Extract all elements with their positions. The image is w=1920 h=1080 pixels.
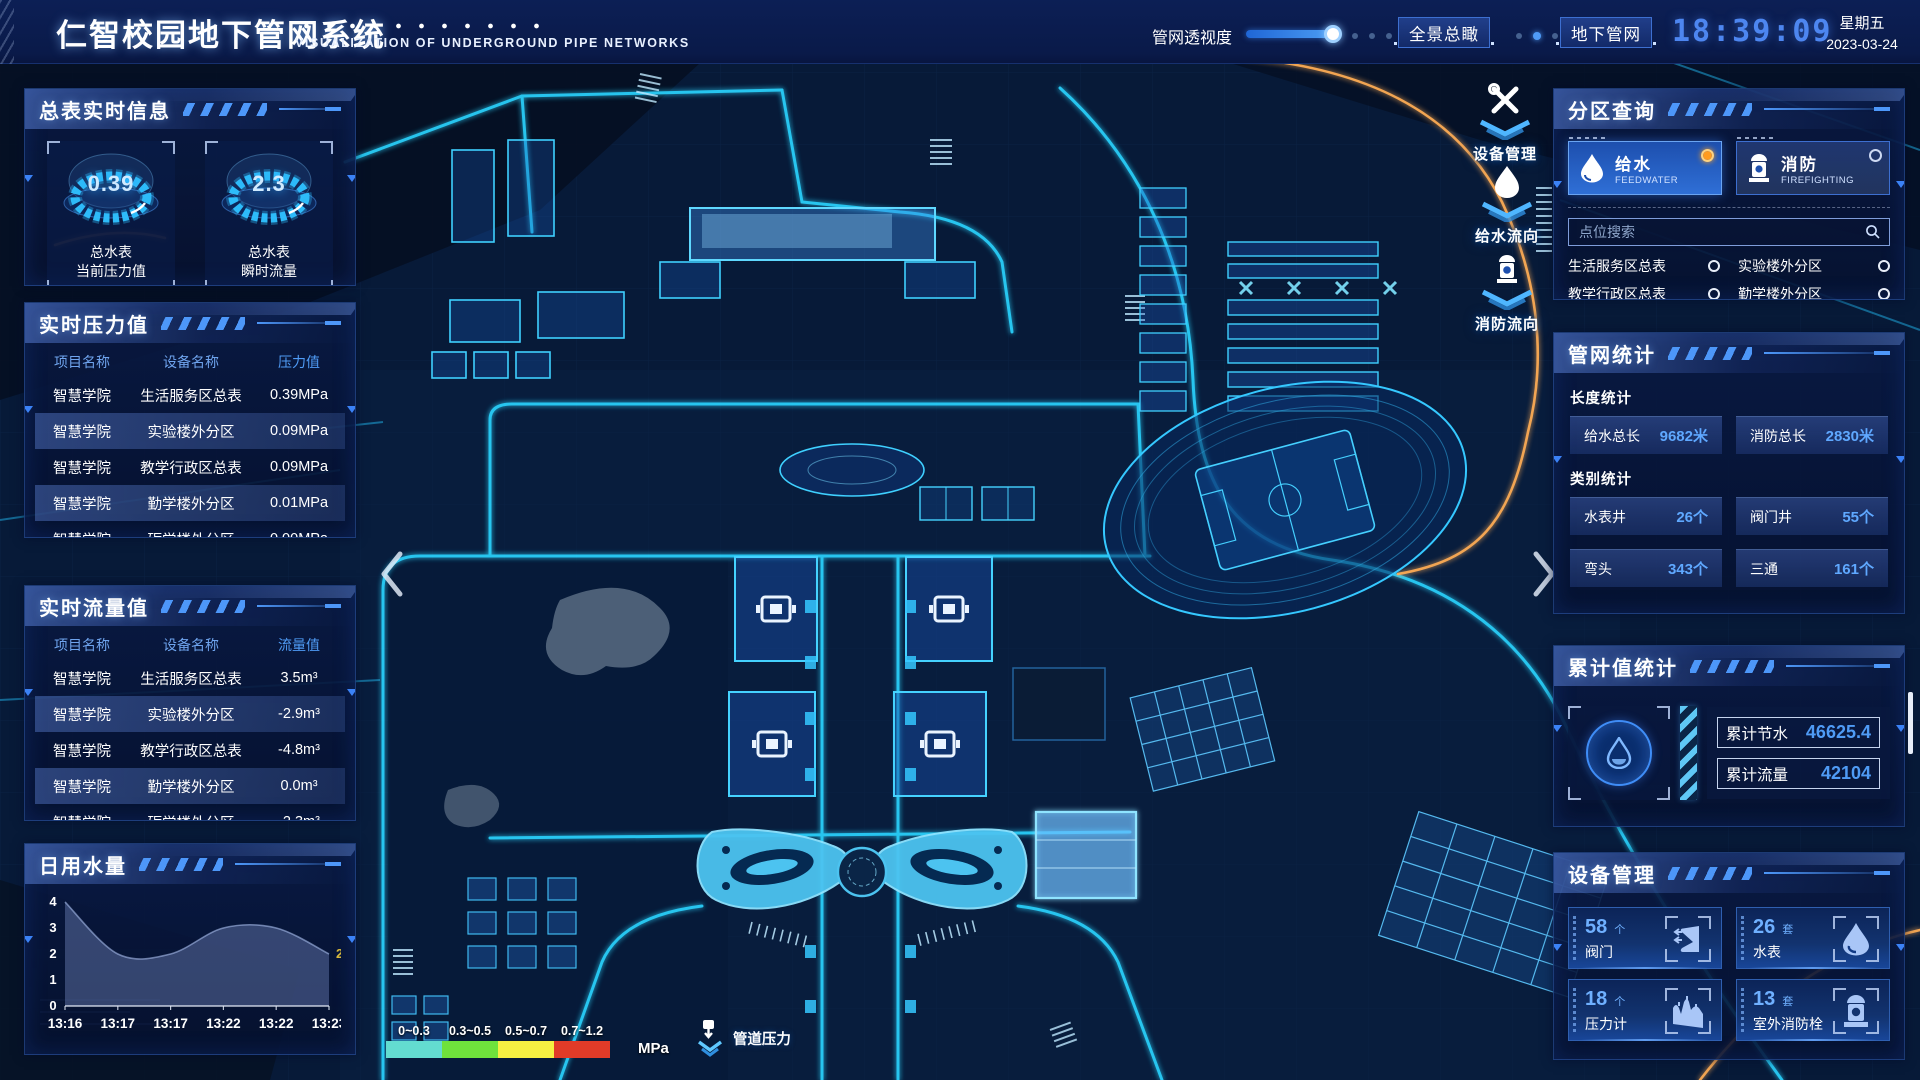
table-cell: 生活服务区总表	[129, 668, 253, 689]
table-row[interactable]: 智慧学院砺学楼外分区0.00MPa	[35, 521, 345, 538]
date: 2023-03-24	[1812, 36, 1912, 52]
table-cell: 实验楼外分区	[129, 421, 253, 442]
col-project: 项目名称	[35, 352, 129, 372]
length-stats-grid: 给水总长9682米消防总长2830米	[1554, 416, 1904, 454]
stat-label: 阀门井	[1750, 507, 1792, 527]
device-label: 阀门	[1585, 942, 1626, 962]
table-cell: -4.8m³	[253, 742, 345, 758]
slashes-decoration	[183, 103, 267, 116]
table-cell: 智慧学院	[35, 421, 129, 442]
gauge-label: 总水表当前压力值	[47, 243, 175, 281]
valve-icon-frame	[1665, 916, 1711, 962]
tab-radio[interactable]	[1869, 149, 1882, 162]
stat-value: 55个	[1842, 506, 1874, 527]
stat-value: 26个	[1676, 506, 1708, 527]
stat-label: 弯头	[1584, 559, 1612, 579]
panel-device-mgmt: 设备管理 58个阀门26套水表18个压力计13套室外消防栓	[1553, 852, 1905, 1060]
pressure-gauge-icon-frame	[1665, 988, 1711, 1034]
device-count: 26	[1753, 916, 1775, 938]
panel-meter-info: 总表实时信息 0.39总水表当前压力值2.3总水表瞬时流量	[24, 88, 356, 286]
table-cell: 勤学楼外分区	[129, 776, 253, 797]
device-card-valve[interactable]: 58个阀门	[1568, 907, 1722, 969]
legend-color-swatch	[386, 1041, 442, 1058]
legend-unit: MPa	[638, 1040, 669, 1057]
table-row[interactable]: 智慧学院勤学楼外分区0.01MPa	[35, 485, 345, 521]
slider-handle[interactable]	[1324, 25, 1342, 43]
panorama-overview-button[interactable]: 全景总瞰	[1398, 17, 1490, 48]
svg-text:13:22: 13:22	[259, 1016, 294, 1031]
stat-label: 消防总长	[1750, 426, 1806, 446]
cumulative-row: 累计节水46625.4	[1717, 717, 1880, 748]
svg-text:2: 2	[49, 946, 56, 961]
gauge-card: 0.39总水表当前压力值	[47, 141, 175, 286]
cumulative-rows: 累计节水46625.4累计流量42104	[1707, 707, 1890, 799]
slashes-decoration	[1668, 867, 1752, 880]
map-icon-label: 消防流向	[1462, 313, 1552, 334]
table-cell: 砺学楼外分区	[129, 529, 253, 539]
header-bar: 仁智校园地下管网系统 VISUALIZATION OF UNDERGROUND …	[0, 0, 1920, 64]
zone-list: 生活服务区总表实验楼外分区教学行政区总表勤学楼外分区砺学楼外分区宿舍区泵房	[1554, 246, 1904, 300]
search-box	[1568, 218, 1890, 246]
weekday: 星期五	[1812, 12, 1912, 33]
cumulative-label: 累计节水	[1726, 722, 1788, 744]
zone-item-radio[interactable]	[1708, 260, 1720, 272]
device-unit: 套	[1781, 923, 1794, 937]
panel-title: 实时流量值	[39, 592, 149, 621]
table-cell: 生活服务区总表	[129, 385, 253, 406]
map-icon-label: 给水流向	[1462, 225, 1552, 246]
category-stats-label: 类别统计	[1554, 454, 1904, 497]
zone-item-label: 教学行政区总表	[1568, 284, 1666, 300]
panel-title: 管网统计	[1568, 339, 1656, 368]
tab-radio[interactable]	[1701, 149, 1714, 162]
stat-value: 9682米	[1660, 425, 1708, 446]
stat-chip: 水表井26个	[1570, 497, 1722, 535]
table-cell: 智慧学院	[35, 668, 129, 689]
table-row[interactable]: 智慧学院实验楼外分区0.09MPa	[35, 413, 345, 449]
hydrant-icon-frame	[1833, 988, 1879, 1034]
table-cell: 0.39MPa	[253, 387, 345, 403]
water-drop-ring	[1586, 720, 1652, 786]
svg-text:1: 1	[49, 972, 56, 987]
stat-value: 343个	[1668, 558, 1708, 579]
cumulative-body: 累计节水46625.4累计流量42104	[1554, 686, 1904, 800]
pipe-pressure-icon	[695, 1018, 725, 1058]
slashes-decoration	[161, 600, 245, 613]
table-cell: 勤学楼外分区	[129, 493, 253, 514]
cumulative-label: 累计流量	[1726, 763, 1788, 785]
svg-text:13:17: 13:17	[153, 1016, 188, 1031]
panel-daily-water: 日用水量 0123413:1613:1713:1713:2213:2213:23…	[24, 843, 356, 1055]
stat-chip: 弯头343个	[1570, 549, 1722, 587]
zone-list-item[interactable]: 教学行政区总表	[1568, 280, 1720, 300]
svg-text:13:22: 13:22	[206, 1016, 241, 1031]
panel-cumulative: 累计值统计 累计节水46625.4累计流量42104	[1553, 645, 1905, 827]
pipe-pressure-label: 管道压力	[733, 1028, 791, 1049]
table-cell: 教学行政区总表	[129, 457, 253, 478]
cumulative-icon-card	[1568, 706, 1670, 800]
dashed-separator	[1568, 207, 1890, 208]
table-header: 项目名称 设备名称 流量值	[35, 630, 345, 660]
stripe-decoration	[1680, 706, 1697, 800]
stat-label: 给水总长	[1584, 426, 1640, 446]
table-cell: 教学行政区总表	[129, 740, 253, 761]
table-row[interactable]: 智慧学院砺学楼外分区-2.3m³	[35, 804, 345, 821]
search-icon[interactable]	[1865, 224, 1881, 240]
zone-item-label: 生活服务区总表	[1568, 256, 1666, 276]
right-scrollbar[interactable]	[1908, 692, 1913, 754]
hydrant-icon	[1747, 153, 1771, 183]
underground-pipes-button[interactable]: 地下管网	[1560, 17, 1652, 48]
legend-range-label: 0.7~1.2	[554, 1024, 610, 1038]
zone-list-item[interactable]: 实验楼外分区	[1738, 252, 1890, 280]
table-cell: 智慧学院	[35, 529, 129, 539]
zone-item-radio[interactable]	[1708, 288, 1720, 300]
table-cell: 3.5m³	[253, 670, 345, 686]
zone-list-item[interactable]: 勤学楼外分区	[1738, 280, 1890, 300]
water-drop-icon[interactable]	[1465, 160, 1549, 222]
tab-label: 消防	[1781, 151, 1854, 175]
area-chart-svg: 0123413:1613:1713:1713:2213:2213:232	[29, 890, 341, 1048]
water-drop-icon	[1579, 153, 1605, 183]
table-cell: 智慧学院	[35, 740, 129, 761]
pressure-table-body: 智慧学院生活服务区总表0.39MPa智慧学院实验楼外分区0.09MPa智慧学院教…	[35, 377, 345, 538]
device-label: 室外消防栓	[1753, 1014, 1823, 1034]
svg-text:2: 2	[336, 946, 341, 961]
stat-chip: 阀门井55个	[1736, 497, 1888, 535]
device-count: 18	[1585, 988, 1607, 1010]
legend-color-swatch	[554, 1041, 610, 1058]
table-cell: -2.9m³	[253, 706, 345, 722]
legend-range-label: 0.5~0.7	[498, 1024, 554, 1038]
device-unit: 个	[1613, 995, 1626, 1009]
zone-item-label: 勤学楼外分区	[1738, 284, 1822, 300]
legend-range-label: 0~0.3	[386, 1024, 442, 1038]
table-cell: 0.00MPa	[253, 531, 345, 538]
gauge-card: 2.3总水表瞬时流量	[205, 141, 333, 286]
svg-text:13:16: 13:16	[48, 1016, 83, 1031]
stat-label: 三通	[1750, 559, 1778, 579]
pipe-opacity-label: 管网透视度	[1152, 24, 1232, 48]
legend-segment: 0.7~1.2	[554, 1024, 610, 1058]
panel-title: 日用水量	[39, 850, 127, 879]
gauge-value: 0.39	[47, 171, 175, 197]
date-block: 星期五 2023-03-24	[1812, 12, 1912, 52]
col-flow: 流量值	[253, 635, 345, 655]
water-drop-icon	[1606, 737, 1632, 769]
col-project: 项目名称	[35, 635, 129, 655]
zone-tab-firefighting[interactable]: 消防FIREFIGHTING	[1736, 141, 1890, 195]
gauge-value: 2.3	[205, 171, 333, 197]
legend-segments: 0~0.30.3~0.50.5~0.70.7~1.2	[386, 1024, 610, 1058]
stat-chip: 给水总长9682米	[1570, 416, 1722, 454]
stat-label: 水表井	[1584, 507, 1626, 527]
table-row[interactable]: 智慧学院教学行政区总表0.09MPa	[35, 449, 345, 485]
app-subtitle: VISUALIZATION OF UNDERGROUND PIPE NETWOR…	[295, 36, 690, 50]
legend-segment: 0.5~0.7	[498, 1024, 554, 1058]
svg-text:13:17: 13:17	[101, 1016, 136, 1031]
cumulative-row: 累计流量42104	[1717, 758, 1880, 789]
table-row[interactable]: 智慧学院生活服务区总表3.5m³	[35, 660, 345, 696]
panel-pipe-stats: 管网统计 长度统计 给水总长9682米消防总长2830米 类别统计 水表井26个…	[1553, 332, 1905, 614]
device-count: 13	[1753, 988, 1775, 1010]
flow-table-body: 智慧学院生活服务区总表3.5m³智慧学院实验楼外分区-2.9m³智慧学院教学行政…	[35, 660, 345, 821]
carousel-left-arrow[interactable]	[374, 548, 408, 600]
col-pressure: 压力值	[253, 352, 345, 372]
legend-pressure-item: 管道压力	[695, 1018, 791, 1058]
pipe-pressure-legend: 0~0.30.3~0.50.5~0.70.7~1.2 MPa 管道压力	[386, 1018, 791, 1058]
table-cell: 0.09MPa	[253, 459, 345, 475]
zone-item-label: 实验楼外分区	[1738, 256, 1822, 276]
map-icon-tools[interactable]: 设备管理	[1460, 78, 1550, 164]
tab-sublabel: FIREFIGHTING	[1781, 175, 1854, 186]
cumulative-value: 46625.4	[1806, 722, 1871, 743]
col-device: 设备名称	[129, 635, 253, 655]
legend-segment: 0.3~0.5	[442, 1024, 498, 1058]
svg-text:3: 3	[49, 920, 56, 935]
stat-value: 161个	[1834, 558, 1874, 579]
panel-zone-query: 分区查询 给水FEEDWATER消防FIREFIGHTING 生活服务区总表实验…	[1553, 88, 1905, 300]
table-row[interactable]: 智慧学院实验楼外分区-2.9m³	[35, 696, 345, 732]
table-cell: 智慧学院	[35, 704, 129, 725]
device-label: 水表	[1753, 942, 1794, 962]
panel-title: 分区查询	[1568, 95, 1656, 124]
legend-range-label: 0.3~0.5	[442, 1024, 498, 1038]
slashes-decoration	[1668, 347, 1752, 360]
device-unit: 个	[1613, 923, 1626, 937]
point-search-input[interactable]	[1569, 224, 1865, 240]
clock: 18:39:09	[1672, 14, 1833, 49]
map-icon-water-drop[interactable]: 给水流向	[1462, 160, 1552, 246]
gauge-label: 总水表瞬时流量	[205, 243, 333, 281]
table-header: 项目名称 设备名称 压力值	[35, 347, 345, 377]
legend-segment: 0~0.3	[386, 1024, 442, 1058]
device-card-hydrant[interactable]: 13套室外消防栓	[1736, 979, 1890, 1041]
daily-water-chart: 0123413:1613:1713:1713:2213:2213:232	[25, 884, 355, 1053]
slashes-decoration	[1690, 660, 1774, 673]
panel-realtime-pressure: 实时压力值 项目名称 设备名称 压力值 智慧学院生活服务区总表0.39MPa智慧…	[24, 302, 356, 538]
gauge-row: 0.39总水表当前压力值2.3总水表瞬时流量	[25, 129, 355, 286]
panel-title: 总表实时信息	[39, 95, 171, 124]
table-cell: 智慧学院	[35, 776, 129, 797]
table-cell: 智慧学院	[35, 493, 129, 514]
gauge-visual: 2.3	[205, 141, 333, 237]
table-cell: 0.0m³	[253, 778, 345, 794]
zone-tab-feedwater[interactable]: 给水FEEDWATER	[1568, 141, 1722, 195]
stat-chip: 消防总长2830米	[1736, 416, 1888, 454]
device-card-pressure-gauge[interactable]: 18个压力计	[1568, 979, 1722, 1041]
title-dots-decoration	[295, 22, 550, 30]
panel-title: 实时压力值	[39, 309, 149, 338]
table-row[interactable]: 智慧学院生活服务区总表0.39MPa	[35, 377, 345, 413]
panel-title: 累计值统计	[1568, 652, 1678, 681]
length-stats-label: 长度统计	[1554, 373, 1904, 416]
dashboard-root: 仁智校园地下管网系统 VISUALIZATION OF UNDERGROUND …	[0, 0, 1920, 1080]
legend-color-swatch	[498, 1041, 554, 1058]
device-unit: 套	[1781, 995, 1794, 1009]
device-label: 压力计	[1585, 1014, 1627, 1034]
col-device: 设备名称	[129, 352, 253, 372]
table-cell: 智慧学院	[35, 812, 129, 822]
table-cell: -2.3m³	[253, 814, 345, 821]
slashes-decoration	[1668, 103, 1752, 116]
gauge-visual: 0.39	[47, 141, 175, 237]
device-count: 58	[1585, 916, 1607, 938]
water-meter-icon-frame	[1833, 916, 1879, 962]
header-dots-2	[1516, 33, 1558, 40]
zone-tab-row: 给水FEEDWATER消防FIREFIGHTING	[1554, 129, 1904, 195]
cumulative-value: 42104	[1821, 763, 1871, 784]
header-dots-1	[1352, 33, 1392, 39]
table-row[interactable]: 智慧学院勤学楼外分区0.0m³	[35, 768, 345, 804]
tab-sublabel: FEEDWATER	[1615, 175, 1678, 186]
table-cell: 智慧学院	[35, 385, 129, 406]
device-card-water-meter[interactable]: 26套水表	[1736, 907, 1890, 969]
hydrant-icon[interactable]	[1465, 248, 1549, 310]
pipe-opacity-slider[interactable]	[1246, 30, 1338, 38]
stat-chip: 三通161个	[1736, 549, 1888, 587]
zone-item-radio[interactable]	[1878, 260, 1890, 272]
table-cell: 0.09MPa	[253, 423, 345, 439]
device-card-grid: 58个阀门26套水表18个压力计13套室外消防栓	[1554, 893, 1904, 1041]
table-cell: 实验楼外分区	[129, 704, 253, 725]
svg-text:13:23: 13:23	[312, 1016, 341, 1031]
svg-text:0: 0	[49, 998, 56, 1013]
panel-realtime-flow: 实时流量值 项目名称 设备名称 流量值 智慧学院生活服务区总表3.5m³智慧学院…	[24, 585, 356, 821]
panel-title: 设备管理	[1568, 859, 1656, 888]
category-stats-grid: 水表井26个阀门井55个弯头343个三通161个	[1554, 497, 1904, 614]
tab-label: 给水	[1615, 151, 1678, 175]
slashes-decoration	[161, 317, 245, 330]
map-icon-hydrant[interactable]: 消防流向	[1462, 248, 1552, 334]
slashes-decoration	[139, 858, 223, 871]
table-row[interactable]: 智慧学院教学行政区总表-4.8m³	[35, 732, 345, 768]
table-cell: 智慧学院	[35, 457, 129, 478]
svg-text:4: 4	[49, 894, 57, 909]
table-cell: 砺学楼外分区	[129, 812, 253, 822]
table-cell: 0.01MPa	[253, 495, 345, 511]
zone-item-radio[interactable]	[1878, 288, 1890, 300]
legend-color-swatch	[442, 1041, 498, 1058]
stat-value: 2830米	[1826, 425, 1874, 446]
zone-list-item[interactable]: 生活服务区总表	[1568, 252, 1720, 280]
tools-icon[interactable]	[1463, 78, 1547, 140]
